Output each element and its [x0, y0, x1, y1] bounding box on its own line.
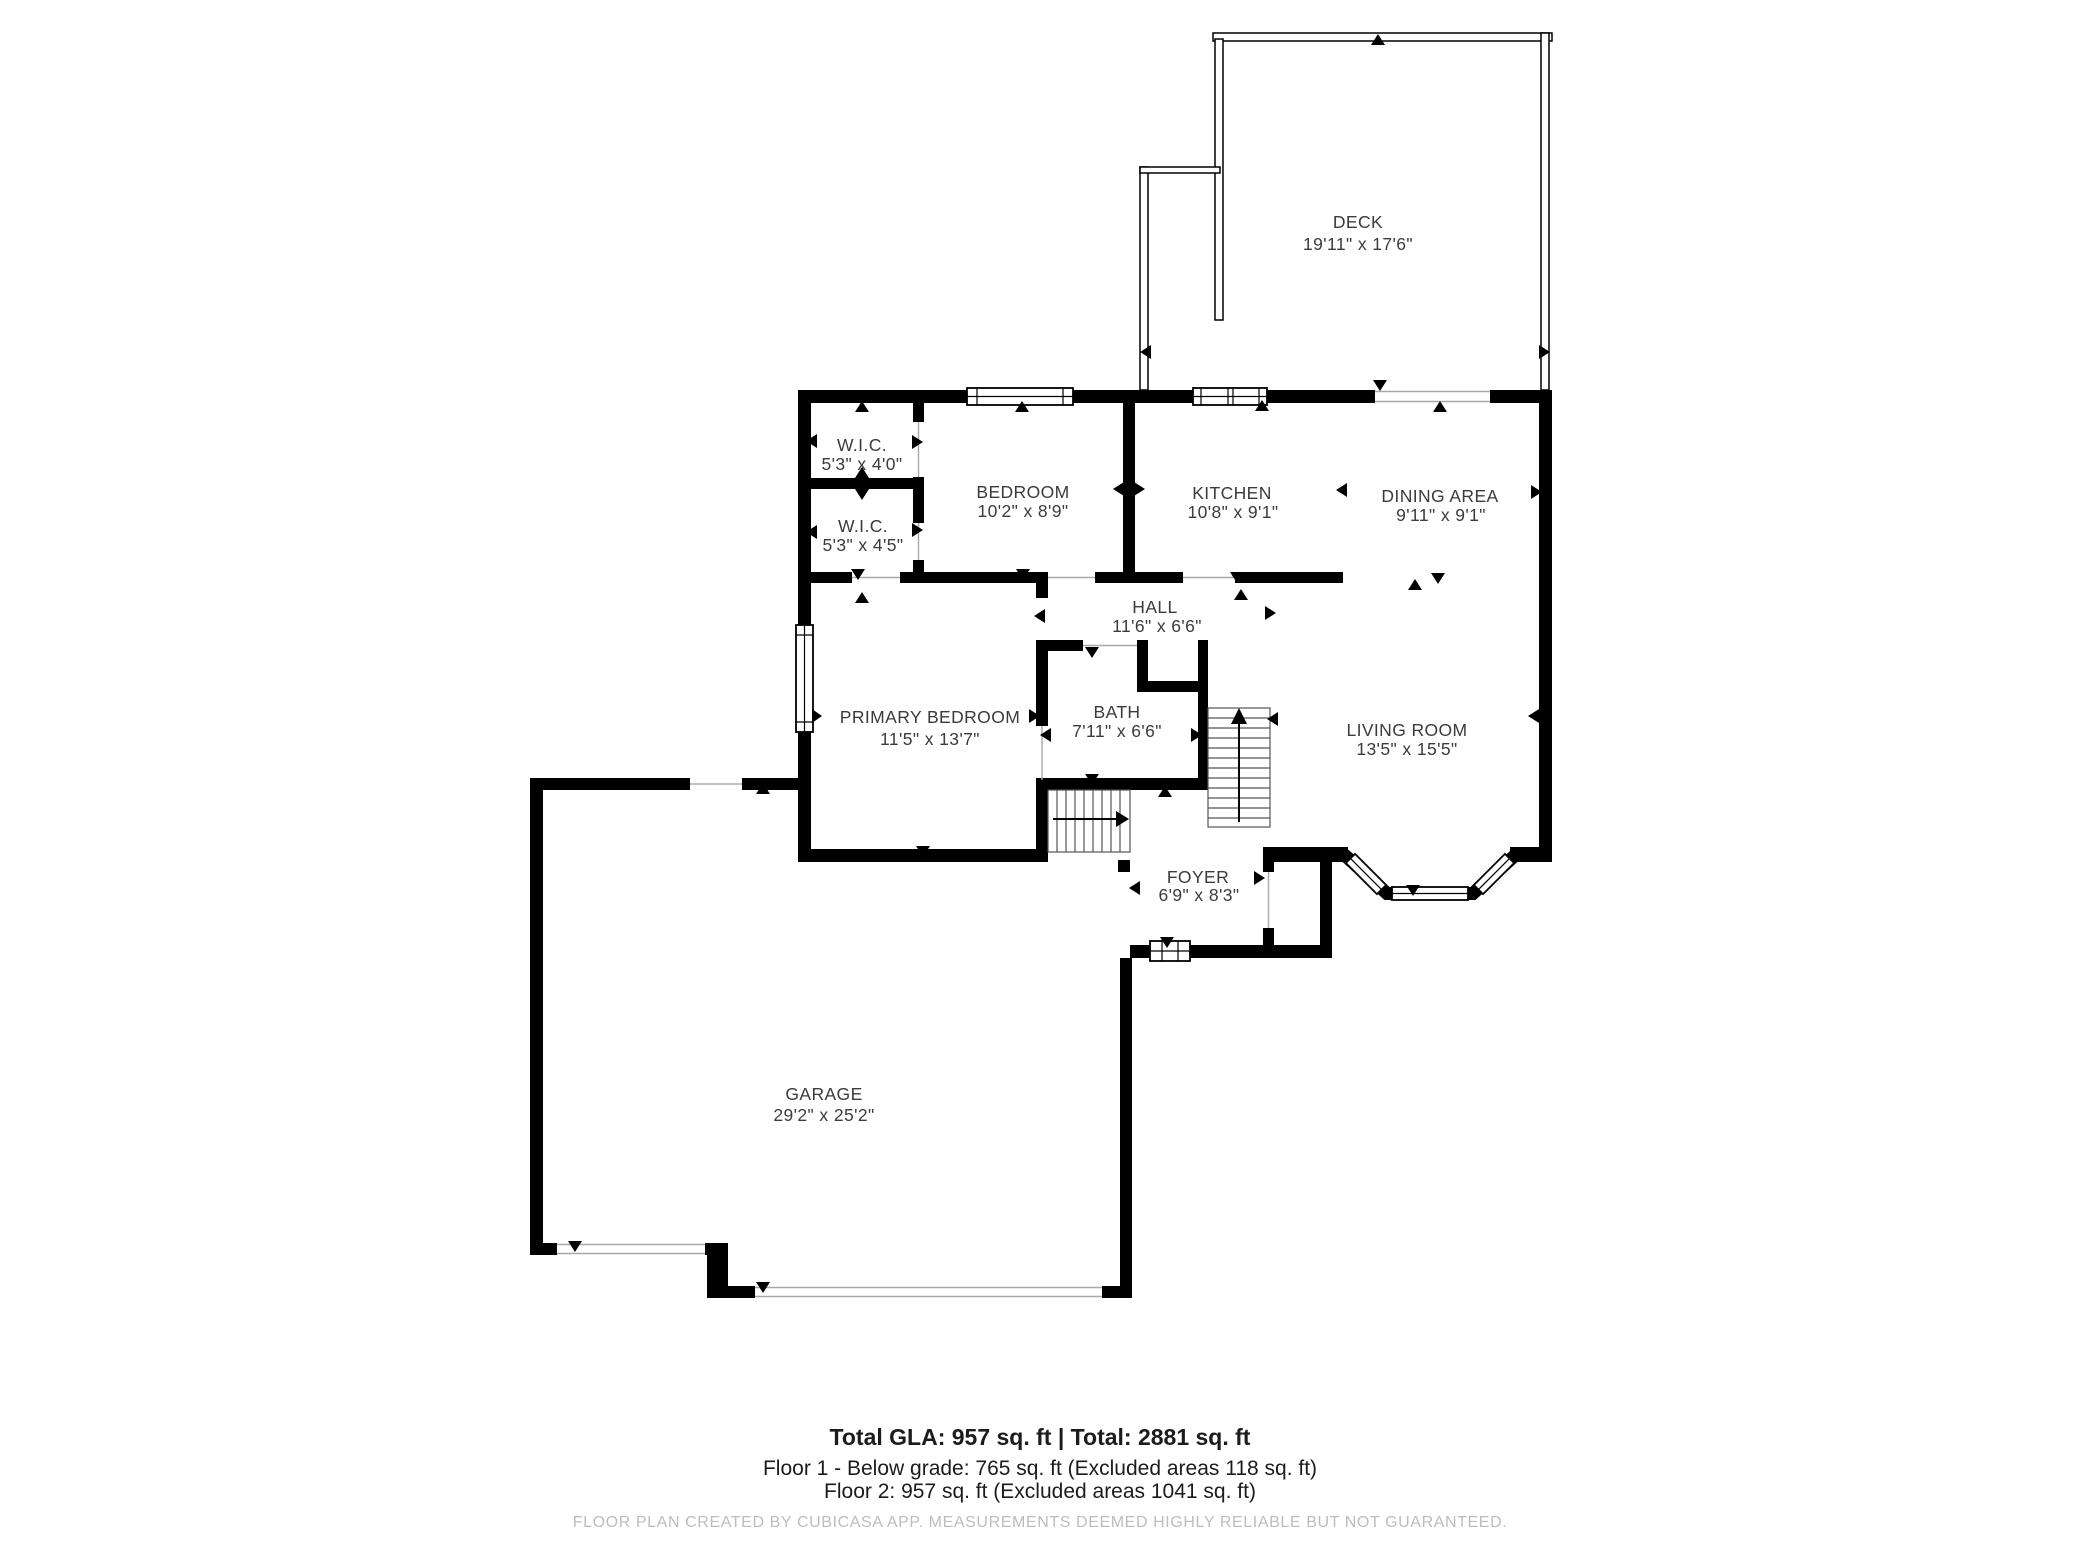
- wall-segment: [1539, 390, 1552, 862]
- bay-window-pane-left: [1346, 854, 1386, 894]
- wall-segment: [1036, 778, 1208, 790]
- room-label-living-room: LIVING ROOM: [1346, 720, 1467, 740]
- marker-icon: [851, 569, 865, 580]
- room-dims-wic-1: 5'3" x 4'0": [822, 454, 903, 474]
- wall-segment: [913, 560, 924, 572]
- deck-rail-top: [1213, 33, 1552, 41]
- front-door: [1150, 941, 1190, 961]
- bay-window: [1344, 854, 1516, 900]
- room-dims-hall: 11'6" x 6'6": [1112, 616, 1202, 636]
- wall-segment: [900, 572, 1036, 583]
- room-dims-primary-bedroom: 11'5" x 13'7": [880, 729, 980, 749]
- primary-bedroom-window: [796, 625, 813, 732]
- wall-segment: [742, 778, 811, 790]
- wall-segment: [1095, 572, 1183, 583]
- wall-segment: [717, 1286, 755, 1298]
- room-dims-living-room: 13'5" x 15'5": [1356, 739, 1457, 759]
- footer-disclaimer: FLOOR PLAN CREATED BY CUBICASA APP. MEAS…: [0, 1514, 2080, 1532]
- wall-segment: [1263, 928, 1274, 945]
- marker-icon: [1234, 589, 1248, 600]
- wall-segment: [1118, 860, 1130, 872]
- marker-icon: [812, 709, 822, 723]
- footer-total-gla: Total GLA: 957 sq. ft | Total: 2881 sq. …: [0, 1424, 2080, 1451]
- wall-segment: [1120, 958, 1132, 1298]
- wall-segment: [1036, 572, 1048, 598]
- wall-segment: [1048, 640, 1083, 651]
- marker-icon: [912, 523, 923, 537]
- marker-icon: [1408, 579, 1422, 590]
- room-label-primary-bedroom: PRIMARY BEDROOM: [840, 707, 1020, 727]
- kitchen-window: [1193, 388, 1267, 405]
- staircase-down: [1048, 790, 1130, 852]
- room-label-dining-area: DINING AREA: [1381, 486, 1498, 506]
- room-dims-bath: 7'11" x 6'6": [1072, 721, 1162, 741]
- deck-rail-annex-left: [1140, 167, 1148, 390]
- room-label-bedroom: BEDROOM: [976, 482, 1069, 502]
- deck-rail-right: [1541, 33, 1549, 390]
- marker-icon: [1265, 606, 1276, 620]
- room-dims-wic-2: 5'3" x 4'5": [823, 535, 904, 555]
- wall-segment: [1187, 945, 1332, 958]
- room-label-garage: GARAGE: [785, 1084, 862, 1104]
- marker-icon: [1336, 483, 1347, 497]
- staircase-up: [1208, 708, 1270, 827]
- walls: [530, 390, 1552, 1298]
- wall-segment: [1263, 847, 1348, 862]
- wall-segment: [798, 390, 967, 403]
- marker-icon: [1254, 871, 1265, 885]
- wall-segment: [1036, 640, 1048, 726]
- marker-icon: [912, 435, 923, 449]
- floor-plan-page: DECK 19'11" x 17'6" W.I.C. 5'3" x 4'0" W…: [0, 0, 2080, 1560]
- room-dims-kitchen: 10'8" x 9'1": [1187, 502, 1278, 522]
- room-dims-bedroom: 10'2" x 8'9": [977, 501, 1068, 521]
- deck-rail-annex-top: [1140, 167, 1220, 173]
- deck-rail-inner: [1215, 39, 1223, 320]
- room-dims-deck: 19'11" x 17'6": [1303, 234, 1413, 254]
- wall-segment: [1073, 390, 1193, 403]
- wall-segment: [798, 572, 852, 583]
- wall-segment: [811, 478, 913, 489]
- room-dims-garage: 29'2" x 25'2": [773, 1105, 874, 1125]
- marker-icon: [1431, 573, 1445, 584]
- room-dims-foyer: 6'9" x 8'3": [1159, 885, 1240, 905]
- room-label-wic-1: W.I.C.: [837, 435, 887, 455]
- room-label-wic-2: W.I.C.: [838, 516, 888, 536]
- wall-segment: [530, 1243, 557, 1255]
- wall-segment: [1263, 862, 1274, 872]
- marker-icon: [1373, 380, 1387, 391]
- bay-window-pane-right: [1474, 854, 1514, 894]
- wall-segment: [530, 778, 690, 790]
- footer-floor2: Floor 2: 957 sq. ft (Excluded areas 1041…: [0, 1480, 2080, 1504]
- marker-icon: [1528, 709, 1539, 723]
- room-label-kitchen: KITCHEN: [1192, 483, 1272, 503]
- wall-segment: [1036, 780, 1048, 862]
- wall-segment: [1123, 403, 1135, 572]
- marker-icon: [855, 592, 869, 603]
- wall-segment: [913, 477, 924, 523]
- room-label-bath: BATH: [1094, 702, 1141, 722]
- wall-segment: [1235, 572, 1343, 583]
- wall-segment: [1320, 847, 1332, 958]
- wall-segment: [1137, 640, 1148, 692]
- bedroom-window: [967, 388, 1073, 405]
- room-labels: DECK 19'11" x 17'6" W.I.C. 5'3" x 4'0" W…: [773, 212, 1498, 1125]
- room-label-deck: DECK: [1333, 212, 1383, 232]
- opening-lines: [557, 392, 1490, 1297]
- wall-segment: [530, 778, 543, 1255]
- marker-icon: [1085, 647, 1099, 658]
- wall-segment: [1267, 390, 1375, 403]
- floor-plan-drawing: DECK 19'11" x 17'6" W.I.C. 5'3" x 4'0" W…: [0, 0, 2080, 1560]
- wall-segment: [1148, 681, 1198, 692]
- marker-icon: [1113, 482, 1124, 496]
- marker-icon: [1433, 401, 1447, 412]
- marker-icon: [1134, 482, 1145, 496]
- wall-segment: [1198, 640, 1208, 787]
- footer-floor1: Floor 1 - Below grade: 765 sq. ft (Exclu…: [0, 1457, 2080, 1481]
- marker-icon: [1034, 609, 1045, 623]
- marker-icon: [568, 1241, 582, 1252]
- marker-icon: [1129, 881, 1140, 895]
- room-label-hall: HALL: [1132, 597, 1177, 617]
- room-dims-dining-area: 9'11" x 9'1": [1396, 505, 1486, 525]
- wall-segment: [913, 403, 924, 422]
- room-label-foyer: FOYER: [1167, 867, 1229, 887]
- marker-icon: [855, 489, 869, 500]
